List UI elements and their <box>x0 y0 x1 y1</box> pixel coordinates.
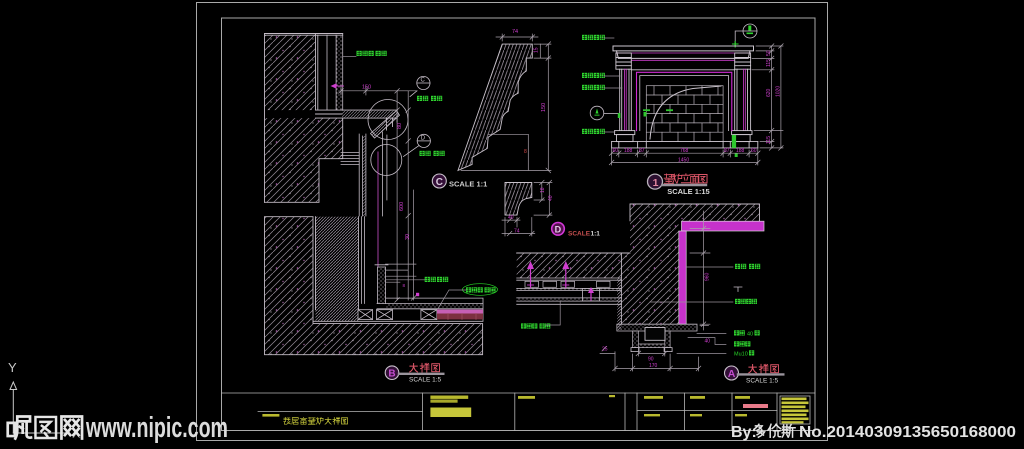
svg-text:SCALE 1:1: SCALE 1:1 <box>449 180 487 189</box>
svg-text:40: 40 <box>747 332 753 338</box>
svg-text:115: 115 <box>766 136 772 144</box>
svg-text:60: 60 <box>751 148 757 154</box>
svg-text:1020: 1020 <box>776 86 782 97</box>
svg-text:8: 8 <box>524 149 527 155</box>
svg-text:150: 150 <box>362 85 371 91</box>
svg-text:60: 60 <box>613 148 619 154</box>
svg-text:By:: By: <box>731 424 757 441</box>
svg-text:960: 960 <box>705 272 711 281</box>
svg-text:768: 768 <box>680 148 689 154</box>
svg-text:74: 74 <box>512 29 518 35</box>
svg-text:40: 40 <box>548 195 554 201</box>
svg-text:SCALE 1:15: SCALE 1:15 <box>667 187 710 196</box>
svg-text:Mu10: Mu10 <box>734 352 748 358</box>
svg-text:A: A <box>728 368 736 380</box>
svg-text:188: 188 <box>624 148 633 154</box>
svg-text:50: 50 <box>766 50 772 56</box>
svg-text:D: D <box>555 224 562 234</box>
svg-text:87: 87 <box>724 148 730 154</box>
svg-text:87: 87 <box>639 148 645 154</box>
svg-text:80: 80 <box>397 123 403 129</box>
svg-text:188: 188 <box>736 148 745 154</box>
svg-text:1:1: 1:1 <box>591 231 601 238</box>
svg-text:8: 8 <box>403 283 406 288</box>
svg-text:1450: 1450 <box>678 158 689 164</box>
svg-text:C: C <box>421 78 426 84</box>
svg-text:18: 18 <box>540 187 546 193</box>
svg-text:170: 170 <box>649 363 658 369</box>
svg-text:25: 25 <box>602 347 608 353</box>
svg-text:90: 90 <box>648 356 654 362</box>
svg-text:15: 15 <box>534 47 540 53</box>
svg-text:74: 74 <box>514 229 520 235</box>
svg-text:150: 150 <box>541 103 547 112</box>
svg-text:No.20140309135650168000: No.20140309135650168000 <box>799 424 1016 441</box>
svg-text:SCALE: SCALE <box>568 231 591 238</box>
svg-text:620: 620 <box>766 88 772 97</box>
svg-text:Y: Y <box>8 360 17 375</box>
svg-text:SCALE 1:5: SCALE 1:5 <box>746 377 779 384</box>
svg-text:40: 40 <box>508 215 514 221</box>
svg-text:C: C <box>436 177 443 188</box>
svg-text:www.nipic.com: www.nipic.com <box>85 412 228 444</box>
svg-text:1: 1 <box>653 177 659 189</box>
svg-text:SCALE 1:5: SCALE 1:5 <box>409 377 442 384</box>
svg-text:B: B <box>388 369 395 380</box>
svg-text:30: 30 <box>405 234 411 240</box>
svg-text:D: D <box>421 135 426 141</box>
svg-text:115: 115 <box>766 59 772 67</box>
svg-text:600: 600 <box>399 202 405 211</box>
svg-text:40: 40 <box>705 339 711 345</box>
